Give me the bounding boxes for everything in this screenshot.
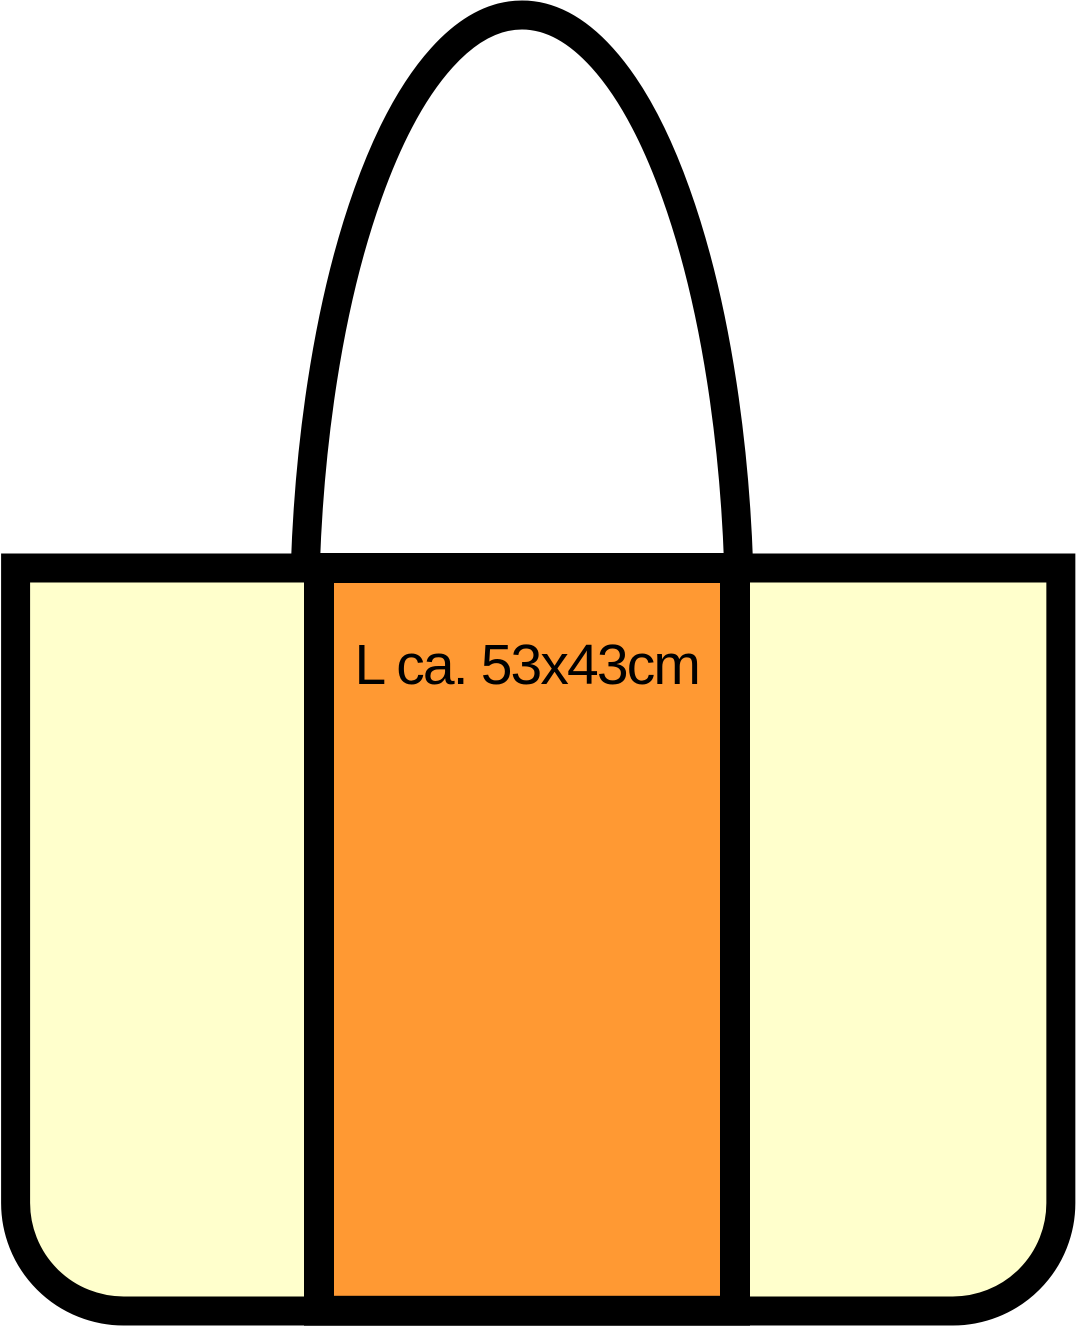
svg-text:L ca. 53x43cm: L ca. 53x43cm (355, 633, 700, 697)
